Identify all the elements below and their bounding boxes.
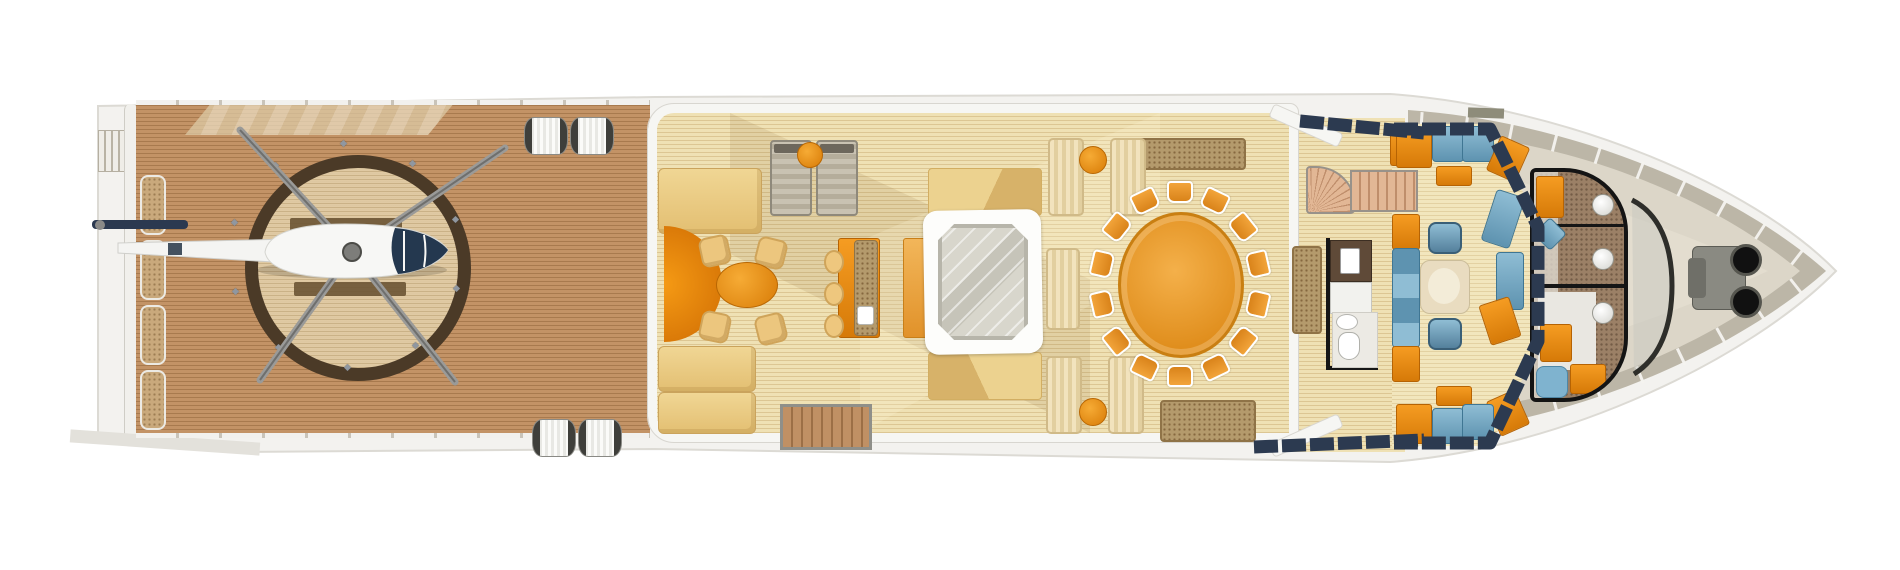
jacuzzi-water xyxy=(938,224,1028,340)
galley-appliance xyxy=(1340,248,1360,274)
sun-lounger-cream xyxy=(1046,356,1082,434)
deck-awning-shadow xyxy=(185,102,455,135)
lounge-table xyxy=(716,262,778,308)
capstan xyxy=(1730,286,1762,318)
bow-windshield xyxy=(1632,200,1672,374)
bar-stool xyxy=(824,282,844,306)
mooring-winch xyxy=(578,419,622,457)
lounge-sofa xyxy=(658,346,756,392)
salon-ottoman xyxy=(1436,386,1472,406)
sideboard xyxy=(1160,400,1256,442)
mooring-winch xyxy=(570,117,614,155)
sun-lounger-cream xyxy=(1048,138,1084,216)
mooring-winch xyxy=(524,117,568,155)
heads-cabinet xyxy=(1570,364,1606,394)
toilet xyxy=(1338,332,1360,360)
heads-cabinet xyxy=(1536,176,1564,218)
fender-pad xyxy=(140,305,166,365)
salon-sofa-blue xyxy=(1462,126,1494,162)
forward-heads xyxy=(1530,168,1628,402)
side-table xyxy=(797,142,823,168)
sink xyxy=(1592,194,1614,216)
bar-sink xyxy=(857,306,874,325)
roof-vent xyxy=(1468,107,1504,118)
dining-chair xyxy=(1167,365,1193,387)
lobby-console xyxy=(1292,246,1322,334)
deck-plan-canvas: Superyacht main deck plan — top view xyxy=(0,0,1900,570)
coffee-table-top xyxy=(1428,268,1460,304)
helipad-h-mark-top xyxy=(290,218,402,232)
side-table xyxy=(1079,398,1107,426)
page-title: Superyacht main deck plan — top view xyxy=(0,21,1,22)
mooring-winch xyxy=(532,419,576,457)
salon-sofa-blue xyxy=(1432,126,1464,162)
dayhead-sink xyxy=(1336,314,1358,330)
tail-rotor xyxy=(95,220,105,230)
salon-sofa-blue xyxy=(1432,408,1464,444)
salon-sofa-blue-long xyxy=(1392,248,1420,348)
sink xyxy=(1592,302,1614,324)
windlass-gear xyxy=(1688,258,1706,298)
fender-pad xyxy=(140,370,166,430)
fender-pad xyxy=(140,240,166,300)
galley-counter-white xyxy=(1330,282,1372,314)
bar-stool xyxy=(824,250,844,274)
salon-armchair xyxy=(1428,318,1462,350)
shower-mat xyxy=(1536,366,1568,398)
helipad-h-mark-bottom xyxy=(294,282,406,296)
salon-sofa-orange xyxy=(1392,346,1420,382)
staircase-down-aft xyxy=(780,404,872,450)
sun-pad xyxy=(928,352,1042,400)
salon-sofa-orange xyxy=(1396,128,1432,168)
sink xyxy=(1592,248,1614,270)
dining-table xyxy=(1118,212,1244,358)
sideboard xyxy=(1130,138,1246,170)
heads-wall xyxy=(1534,284,1624,288)
salon-ottoman xyxy=(1436,166,1472,186)
side-table xyxy=(1079,146,1107,174)
lounge-sofa xyxy=(658,168,762,234)
salon-sofa-orange xyxy=(1396,404,1432,444)
heads-cabinet xyxy=(1540,324,1572,362)
jacuzzi-step-lounger xyxy=(1046,248,1080,330)
staircase-flight xyxy=(1350,170,1418,212)
salon-sofa-orange xyxy=(1392,214,1420,250)
lounge-sofa xyxy=(658,392,756,434)
capstan xyxy=(1730,244,1762,276)
salon-sofa-blue xyxy=(1462,404,1494,440)
dining-chair xyxy=(1167,181,1193,203)
bar-stool xyxy=(824,314,844,338)
salon-armchair xyxy=(1428,222,1462,254)
fender-pad xyxy=(140,175,166,235)
aft-rail-top xyxy=(136,100,650,105)
